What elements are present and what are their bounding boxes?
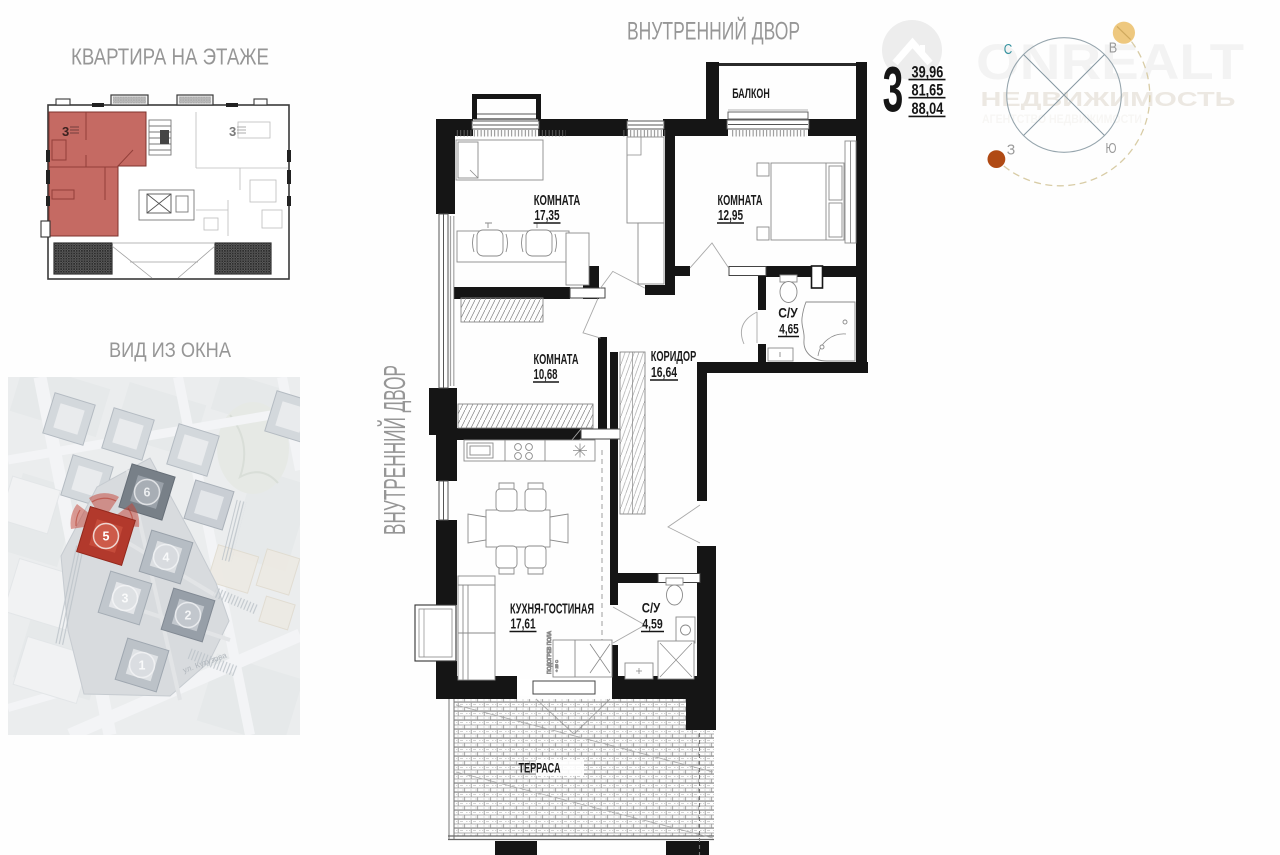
svg-text:В: В	[1109, 40, 1118, 57]
svg-text:+ 25 С: + 25 С	[554, 660, 559, 672]
svg-text:16,64: 16,64	[651, 364, 677, 381]
svg-text:12,95: 12,95	[718, 207, 743, 224]
svg-text:17,35: 17,35	[535, 207, 560, 224]
svg-text:КОРИДОР: КОРИДОР	[651, 348, 697, 365]
svg-text:17,61: 17,61	[511, 616, 536, 633]
svg-text:5: 5	[103, 530, 110, 544]
svg-text:З: З	[1007, 141, 1016, 158]
svg-text:6: 6	[144, 486, 151, 500]
svg-text:1: 1	[139, 659, 146, 673]
svg-text:ВИД ИЗ ОКНА: ВИД ИЗ ОКНА	[109, 339, 231, 362]
svg-text:3: 3	[229, 124, 236, 139]
svg-text:3: 3	[62, 124, 69, 139]
svg-text:10,68: 10,68	[534, 366, 558, 383]
svg-text:4: 4	[163, 551, 170, 565]
svg-text:4,59: 4,59	[642, 616, 663, 632]
svg-text:39,96: 39,96	[912, 63, 944, 81]
svg-text:ВНУТРЕННИЙ ДВОР: ВНУТРЕННИЙ ДВОР	[376, 365, 412, 535]
svg-text:3: 3	[122, 592, 129, 606]
svg-text:НЕДВИЖИМОСТЬ: НЕДВИЖИМОСТЬ	[981, 89, 1236, 111]
svg-text:С: С	[1004, 41, 1013, 58]
svg-text:ПОДОГРЕВ ПОЛА: ПОДОГРЕВ ПОЛА	[547, 631, 553, 674]
svg-text:С/У: С/У	[778, 305, 798, 321]
svg-text:Ю: Ю	[1106, 140, 1117, 157]
svg-text:3: 3	[883, 55, 904, 126]
svg-text:КВАРТИРА НА ЭТАЖЕ: КВАРТИРА НА ЭТАЖЕ	[71, 43, 269, 69]
svg-text:2: 2	[185, 609, 192, 623]
svg-text:ТЕРРАСА: ТЕРРАСА	[519, 760, 561, 776]
svg-text:БАЛКОН: БАЛКОН	[732, 86, 770, 101]
svg-text:81,65: 81,65	[912, 81, 944, 99]
svg-text:ВНУТРЕННИЙ ДВОР: ВНУТРЕННИЙ ДВОР	[627, 15, 800, 45]
svg-text:88,04: 88,04	[912, 100, 944, 118]
svg-text:4,65: 4,65	[779, 321, 799, 337]
svg-text:С/У: С/У	[642, 600, 661, 616]
